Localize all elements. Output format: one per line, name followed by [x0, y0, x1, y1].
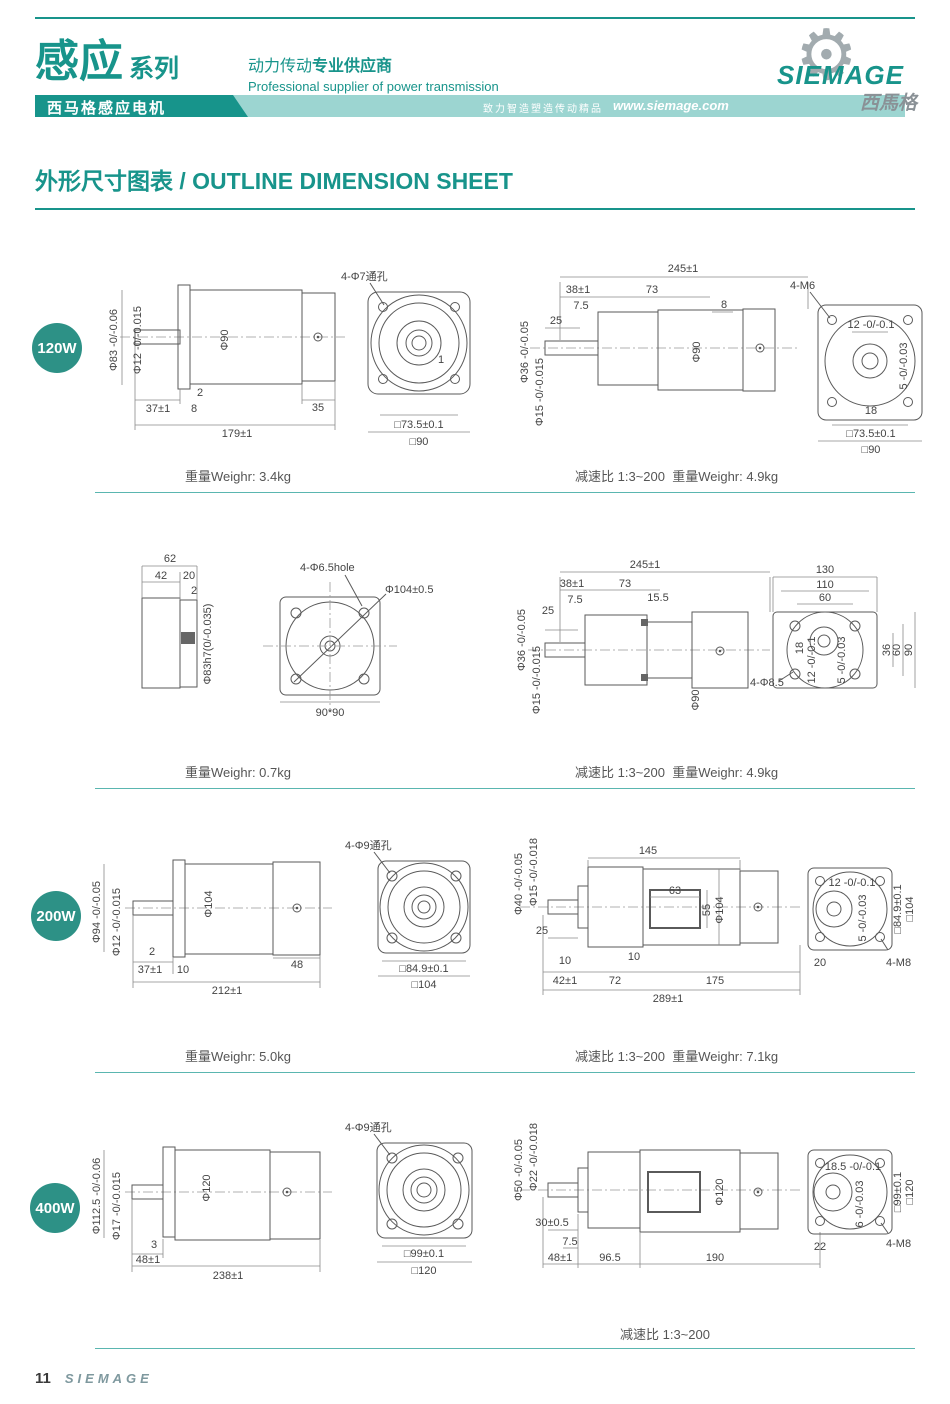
dim-label: □104	[904, 897, 916, 922]
dim-label: 60	[891, 644, 903, 656]
dim-label: 18.5 -0/-0.1	[825, 1161, 881, 1173]
gearmotor-rear-view: 18.5 -0/-0.1 6 -0/-0.03 □99±0.1 □120 22 …	[808, 1150, 916, 1253]
dim-label: Φ120	[714, 1178, 726, 1205]
header-top-rule	[35, 17, 915, 19]
hole-callout: 4-Φ8.5	[750, 677, 784, 689]
dim-label: 5 -0/-0.03	[857, 894, 869, 941]
tagline-cn-bold: 专业供应商	[312, 58, 392, 75]
dim-label: 130	[816, 564, 834, 576]
hole-callout: 4-Φ9通孔	[345, 1121, 392, 1134]
dim-label: □90	[862, 444, 881, 456]
motor-front-view: 4-Φ9通孔 □84.9±0.1 □104	[345, 839, 470, 991]
catalog-page: 感应 系列 动力传动专业供应商 Professional supplier of…	[0, 0, 950, 1404]
dim-label: 42±1	[553, 975, 577, 987]
series-title-cn: 感应	[35, 40, 123, 84]
dim-label: Φ12 -0/-0.015	[111, 888, 123, 956]
dim-label: Φ15 -0/-0.015	[531, 646, 543, 714]
weight-caption: 重量Weighr: 0.7kg	[185, 762, 291, 781]
dim-label: 190	[706, 1252, 724, 1264]
ratio-caption: 减速比 1:3~200	[620, 1324, 710, 1343]
dim-label: □104	[412, 979, 437, 991]
dim-label: 5 -0/-0.03	[898, 342, 910, 389]
dim-label: 25	[542, 605, 554, 617]
dim-label: Φ94 -0/-0.05	[91, 881, 103, 943]
section-rule	[95, 492, 915, 493]
gearmotor-side-view: Φ40 -0/-0.05 Φ15 -0/-0.018 145 63 55 Φ10…	[513, 838, 800, 1005]
dim-label: 245±1	[630, 559, 661, 571]
motor-side-view: Φ112.5 -0/-0.06 Φ17 -0/-0.015 Φ120 3 48±…	[91, 1147, 332, 1282]
drawing-row-flange: 62 42 20 2 Φ83h7(0/-0.035) 4-Φ6.5hole Φ1…	[0, 545, 950, 745]
dim-label: 2	[191, 585, 197, 597]
logo-wordmark: SIEMAGE	[777, 60, 904, 91]
dim-label: □120	[412, 1265, 437, 1277]
dim-label: Φ50 -0/-0.05	[513, 1139, 525, 1201]
band-product-label: 西马格感应电机	[47, 97, 166, 118]
dim-label: 7.5	[567, 594, 582, 606]
dim-label: □99±0.1	[404, 1248, 444, 1260]
dim-label: 96.5	[599, 1252, 620, 1264]
gearmotor-rear-view: 130 110 60 18 12 -0/-0.1 5 -0/-0.03 36 6…	[750, 564, 915, 689]
dim-label: 12 -0/-0.1	[828, 877, 875, 889]
dim-label: 73	[646, 284, 658, 296]
dim-label: Φ40 -0/-0.05	[513, 853, 525, 915]
dim-label: 110	[816, 579, 834, 591]
dim-label: 48	[291, 959, 303, 971]
dim-label: Φ15 -0/-0.015	[534, 358, 546, 426]
dim-label: 238±1	[213, 1270, 244, 1282]
dim-label: 25	[550, 315, 562, 327]
dim-label: 2	[197, 387, 203, 399]
dim-label: 37±1	[146, 403, 170, 415]
dim-label: Φ15 -0/-0.018	[528, 838, 540, 906]
section-rule	[95, 1348, 915, 1349]
gearmotor-rear-view: 12 -0/-0.1 5 -0/-0.03 □84.9±0.1 □104 20 …	[808, 868, 916, 969]
tagline: 动力传动专业供应商 Professional supplier of power…	[248, 52, 499, 94]
dim-label: Φ104	[203, 890, 215, 917]
band-slogan: 致力智造塑造传动精品	[483, 100, 603, 115]
dim-label: 38±1	[560, 578, 584, 590]
dim-label: 12 -0/-0.1	[806, 636, 818, 683]
tagline-en: Professional supplier of power transmiss…	[248, 79, 499, 94]
dim-label: Φ90	[690, 689, 702, 710]
footer: 11 SIEMAGE	[35, 1370, 153, 1387]
band-website: www.siemage.com	[613, 98, 729, 113]
siemage-logo: ⚙ SIEMAGE 西馬格	[775, 20, 950, 115]
drawing-row-400w: Φ112.5 -0/-0.06 Φ17 -0/-0.015 Φ120 3 48±…	[0, 1110, 950, 1350]
tagline-cn-regular: 动力传动	[248, 58, 312, 75]
dim-label: Φ90	[691, 341, 703, 362]
dim-label: Φ104±0.5	[385, 584, 433, 596]
weight-caption: 重量Weighr: 5.0kg	[185, 1046, 291, 1065]
dim-label: 20	[814, 957, 826, 969]
ratio-caption: 减速比 1:3~200 重量Weighr: 4.9kg	[575, 762, 778, 781]
series-title: 感应 系列	[35, 40, 179, 84]
dim-label: Φ22 -0/-0.018	[528, 1123, 540, 1191]
dim-label: 73	[619, 578, 631, 590]
dim-label: 72	[609, 975, 621, 987]
weight-caption: 重量Weighr: 3.4kg	[185, 466, 291, 485]
dim-label: 8	[721, 299, 727, 311]
dim-label: 12 -0/-0.1	[847, 319, 894, 331]
dim-label: 30±0.5	[535, 1217, 569, 1229]
dim-label: 175	[706, 975, 724, 987]
dim-label: 20	[183, 570, 195, 582]
page-number: 11	[35, 1370, 51, 1387]
dim-label: Φ36 -0/-0.05	[516, 609, 528, 671]
dim-label: 5 -0/-0.03	[836, 636, 848, 683]
series-suffix: 系列	[129, 55, 179, 84]
dim-label: 3	[151, 1239, 157, 1251]
footer-brand: SIEMAGE	[65, 1371, 153, 1386]
dim-label: Φ36 -0/-0.05	[519, 321, 531, 383]
dim-label: Φ90	[219, 329, 231, 350]
gearmotor-side-view: 245±1 38±1 73 7.5 15.5 25 Φ36 -0/-0.05 Φ…	[516, 559, 770, 714]
dim-label: 145	[639, 845, 657, 857]
motor-side-view: 62 42 20 2 Φ83h7(0/-0.035)	[142, 553, 214, 688]
ratio-caption: 减速比 1:3~200 重量Weighr: 4.9kg	[575, 466, 778, 485]
dim-label: Φ17 -0/-0.015	[111, 1172, 123, 1240]
motor-front-view: 4-Φ9通孔 □99±0.1 □120	[345, 1121, 472, 1277]
ratio-caption: 减速比 1:3~200 重量Weighr: 7.1kg	[575, 1046, 778, 1065]
dim-label: □120	[904, 1180, 916, 1205]
dim-label: 15.5	[647, 592, 668, 604]
hole-callout: 4-Φ6.5hole	[300, 562, 355, 574]
dim-label: 212±1	[212, 985, 243, 997]
dim-label: 10	[177, 964, 189, 976]
dim-label: 62	[164, 553, 176, 565]
dim-label: 37±1	[138, 964, 162, 976]
dim-label: 1	[438, 354, 444, 366]
dim-label: Φ104	[714, 896, 726, 923]
dim-label: Φ83h7(0/-0.035)	[202, 604, 214, 685]
dim-label: 55	[701, 904, 713, 916]
dim-label: 35	[312, 402, 324, 414]
hole-callout: 4-Φ7通孔	[341, 270, 388, 283]
dim-label: □90	[410, 436, 429, 448]
dim-label: 90*90	[316, 707, 345, 719]
dim-label: 6 -0/-0.03	[854, 1180, 866, 1227]
tagline-cn: 动力传动专业供应商	[248, 52, 499, 76]
dim-label: Φ12 -0/-0.015	[132, 306, 144, 374]
motor-side-view: Φ83 -0/-0.06 Φ12 -0/-0.015 Φ90 2 37±1 8 …	[108, 285, 345, 440]
dim-label: 289±1	[653, 993, 684, 1005]
dim-label: 8	[191, 403, 197, 415]
dim-label: 38±1	[566, 284, 590, 296]
section-rule	[95, 1072, 915, 1073]
dim-label: Φ83 -0/-0.06	[108, 309, 120, 371]
dim-label: 7.5	[573, 300, 588, 312]
dim-label: 60	[819, 592, 831, 604]
dim-label: 22	[814, 1241, 826, 1253]
dim-label: 10	[559, 955, 571, 967]
hole-callout: 4-M6	[790, 280, 815, 292]
dim-label: 10	[628, 951, 640, 963]
dim-label: □84.9±0.1	[892, 884, 904, 933]
dim-label: 90	[903, 644, 915, 656]
hole-callout: 4-Φ9通孔	[345, 839, 392, 852]
dim-label: □73.5±0.1	[846, 428, 895, 440]
gearmotor-rear-view: 4-M6 12 -0/-0.1 5 -0/-0.03 18 □73.5±0.1 …	[790, 280, 922, 456]
dim-label: 245±1	[668, 263, 699, 275]
motor-front-view: 4-Φ7通孔 1 □73.5±0.1 □90	[341, 270, 470, 448]
dim-label: □99±0.1	[892, 1172, 904, 1212]
section-rule	[95, 788, 915, 789]
title-rule	[35, 208, 915, 210]
hole-callout: 4-M8	[886, 1238, 911, 1250]
dim-label: 63	[669, 885, 681, 897]
dim-label: Φ120	[201, 1174, 213, 1201]
gearmotor-side-view: Φ50 -0/-0.05 Φ22 -0/-0.018 30±0.5 7.5 48…	[513, 1123, 820, 1268]
motor-side-view: Φ94 -0/-0.05 Φ12 -0/-0.015 Φ104 2 37±1 1…	[91, 860, 332, 997]
dim-label: 179±1	[222, 428, 253, 440]
hole-callout: 4-M8	[886, 957, 911, 969]
motor-front-view: 4-Φ6.5hole Φ104±0.5 90*90	[263, 562, 433, 719]
dim-label: 2	[149, 946, 155, 958]
dim-label: □73.5±0.1	[394, 419, 443, 431]
drawing-row-120w: Φ83 -0/-0.06 Φ12 -0/-0.015 Φ90 2 37±1 8 …	[0, 255, 950, 460]
dim-label: □84.9±0.1	[399, 963, 448, 975]
gearmotor-side-view: 245±1 38±1 73 7.5 8 25 Φ36 -0/-0.05 Φ15 …	[519, 263, 808, 426]
dim-label: 42	[155, 570, 167, 582]
dim-label: 25	[536, 925, 548, 937]
dim-label: 7.5	[562, 1236, 577, 1248]
dim-label: 48±1	[136, 1254, 160, 1266]
page-title: 外形尺寸图表 / OUTLINE DIMENSION SHEET	[35, 162, 513, 196]
dim-label: 48±1	[548, 1252, 572, 1264]
logo-cn: 西馬格	[860, 88, 917, 115]
dim-label: Φ112.5 -0/-0.06	[91, 1158, 103, 1234]
dim-label: 18	[794, 642, 806, 654]
drawing-row-200w: Φ94 -0/-0.05 Φ12 -0/-0.015 Φ104 2 37±1 1…	[0, 830, 950, 1050]
dim-label: 18	[865, 405, 877, 417]
